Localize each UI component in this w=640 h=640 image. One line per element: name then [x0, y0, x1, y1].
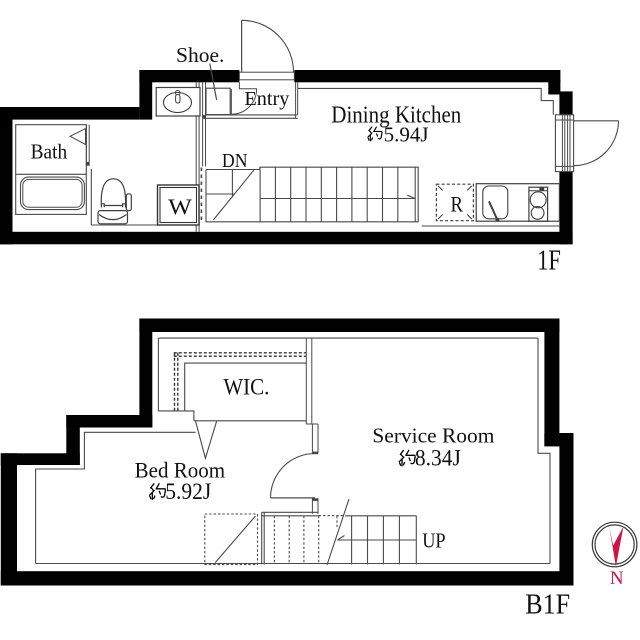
svg-text:B1F: B1F	[525, 589, 570, 621]
svg-text:UP: UP	[422, 530, 445, 553]
svg-text:Shoe.: Shoe.	[176, 43, 224, 67]
svg-text:1F: 1F	[537, 245, 561, 276]
svg-text:Service Room: Service Room	[372, 424, 494, 448]
svg-text:Bath: Bath	[31, 140, 68, 164]
svg-text:WIC.: WIC.	[223, 375, 269, 400]
svg-text:W: W	[168, 194, 192, 219]
svg-text:5.94J: 5.94J	[384, 123, 429, 147]
svg-text:Entry: Entry	[244, 88, 289, 110]
svg-text:8.34J: 8.34J	[415, 446, 461, 471]
svg-text:R: R	[450, 191, 463, 216]
svg-text:5.92J: 5.92J	[165, 479, 211, 504]
svg-text:DN: DN	[222, 150, 248, 172]
svg-text:N: N	[610, 568, 624, 589]
